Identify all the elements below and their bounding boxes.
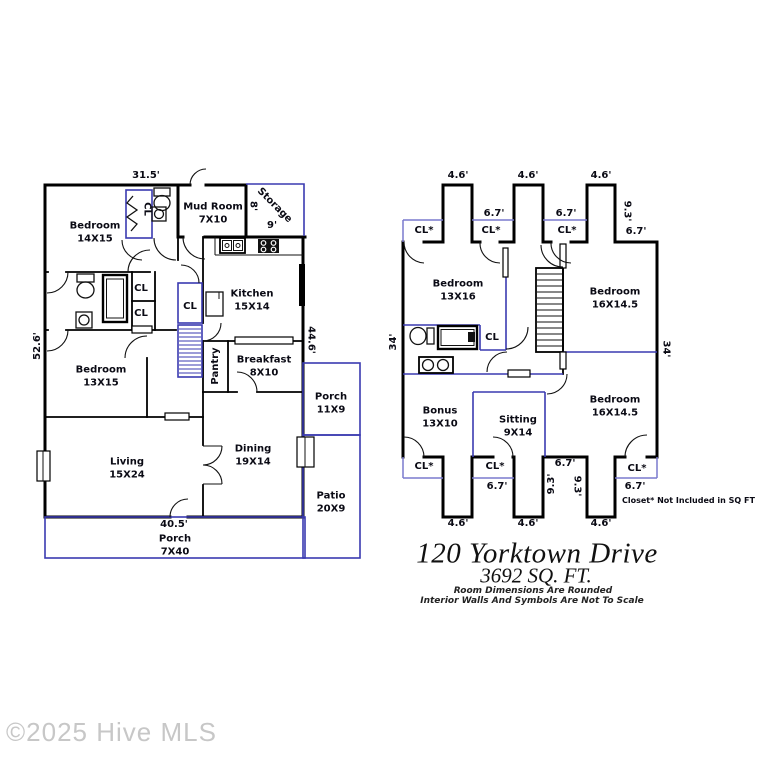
dim-label-closet-bottom-2: 6.7' — [487, 481, 508, 494]
room-label-sitting: Sitting 9X14 — [499, 415, 537, 440]
dim-label-dormer-bottom-2: 4.6' — [518, 518, 539, 531]
room-label-living: Living 15X24 — [109, 457, 145, 482]
title-note-1: Room Dimensions Are Rounded — [454, 586, 612, 596]
dim-label-closet-top-1: 6.7' — [484, 208, 505, 221]
second-floor-exterior-walls — [403, 185, 657, 517]
room-label-kitchen: Kitchen 15X14 — [231, 289, 274, 314]
closet-label-bottom-2: CL* — [486, 461, 505, 474]
room-label-patio: Patio 20X9 — [317, 491, 346, 516]
closet-label-top-1: CL* — [415, 225, 434, 238]
second-floor-plan — [403, 185, 657, 517]
room-label-bedroom-upper: Bedroom 16X14.5 — [590, 287, 641, 312]
refrigerator-icon — [206, 292, 223, 316]
closet-label-top-3: CL* — [558, 225, 577, 238]
dim-label-dormer-bottom-3: 4.6' — [591, 518, 612, 531]
closet-label-bath: CL — [485, 332, 499, 345]
dim-label-dormer-bottom-1: 4.6' — [448, 518, 469, 531]
bathtub-icon — [438, 326, 477, 349]
dim-label-height-left-2f: 34' — [388, 334, 401, 351]
closet-label-top-2: CL* — [482, 225, 501, 238]
dim-label-height-right-2f: 34' — [659, 341, 672, 358]
dim-label-closet-top-3: 6.7' — [626, 226, 647, 239]
double-vanity-icon — [419, 357, 453, 373]
room-label-pantry: Pantry — [210, 347, 223, 384]
dim-label-dormer-top-3: 4.6' — [591, 170, 612, 183]
staircase-first-floor — [178, 325, 202, 377]
title-note-2: Interior Walls And Symbols Are Not To Sc… — [420, 596, 644, 606]
dim-label-width-top: 31.5' — [132, 170, 160, 183]
stove-icon — [258, 239, 279, 253]
bathtub-icon — [103, 275, 127, 322]
closet-footnote: Closet* Not Included in SQ FT — [622, 496, 755, 505]
room-label-mud-room: Mud Room 7X10 — [183, 202, 243, 227]
closet-label-hall-2: CL — [134, 308, 148, 321]
room-label-porch-front: Porch 7X40 — [159, 534, 191, 559]
dim-label-dormer-depth-bottom-1: 9.3' — [546, 474, 559, 495]
closet-rod-zigzag-icon — [127, 196, 137, 231]
dim-label-closet-bottom-3: 6.7' — [625, 481, 646, 494]
dim-label-storage-width: 9' — [267, 220, 277, 233]
dim-label-dormer-top-2: 4.6' — [518, 170, 539, 183]
room-label-bedroom-back: Bedroom 13X15 — [76, 365, 127, 390]
room-label-breakfast: Breakfast 8X10 — [237, 355, 292, 380]
room-label-bonus: Bonus 13X10 — [422, 406, 458, 431]
dim-label-closet-bottom-mid: 6.7' — [555, 458, 576, 471]
room-label-dining: Dining 19X14 — [235, 444, 272, 469]
dim-label-dormer-depth-bottom-2: 9.3' — [570, 476, 583, 497]
floor-plan-page: 31.5' Bedroom 14X15 CL Mud Room 7X10 8' … — [0, 0, 767, 761]
dim-label-dormer-depth-top: 9.3' — [620, 201, 633, 222]
room-label-bedroom-13x16: Bedroom 13X16 — [433, 279, 484, 304]
dim-label-height-right: 44.6' — [304, 326, 317, 354]
staircase-second-floor — [536, 268, 563, 352]
mls-watermark: ©2025 Hive MLS — [6, 717, 217, 748]
closet-label-hall-1: CL — [134, 283, 148, 296]
toilet-icon — [410, 328, 434, 345]
dim-label-storage-depth: 8' — [246, 201, 259, 211]
room-label-bedroom-lower: Bedroom 16X14.5 — [590, 395, 641, 420]
closet-label-front: CL — [140, 202, 153, 216]
dim-label-width-bottom: 40.5' — [160, 519, 188, 532]
dim-label-dormer-top-1: 4.6' — [448, 170, 469, 183]
room-label-porch-side: Porch 11X9 — [315, 392, 347, 417]
closet-label-center: CL — [183, 301, 197, 314]
dim-label-height-left: 52.6' — [32, 332, 45, 360]
closet-label-bottom-3: CL* — [628, 463, 647, 476]
room-label-bedroom-front: Bedroom 14X15 — [70, 221, 121, 246]
page-title-sqft: 3692 SQ. FT. — [480, 564, 592, 589]
dim-label-closet-top-2: 6.7' — [556, 208, 577, 221]
closet-label-bottom-1: CL* — [415, 461, 434, 474]
kitchen-sink-icon — [220, 238, 245, 253]
